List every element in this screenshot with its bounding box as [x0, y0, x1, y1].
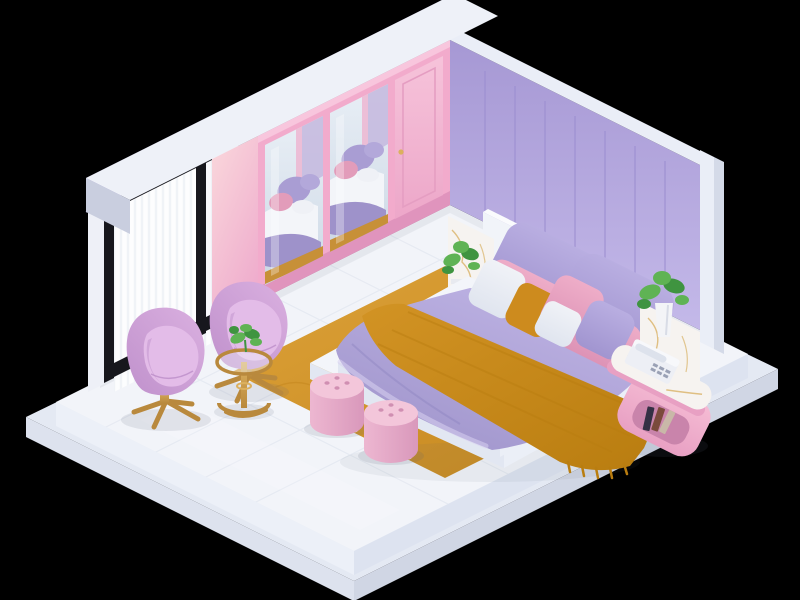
pouf-2 — [364, 400, 418, 463]
mirror-streak — [336, 114, 344, 244]
wall-end-column — [88, 202, 104, 392]
button — [378, 408, 383, 412]
plant-vase — [655, 303, 673, 337]
wardrobe-door-solid — [395, 56, 443, 219]
button — [334, 376, 339, 380]
button — [388, 403, 393, 407]
leaf — [637, 299, 651, 309]
window-frame-center-post — [196, 155, 206, 338]
reflected-pillow-lavender — [364, 142, 384, 158]
isometric-bedroom-scene — [0, 0, 800, 600]
pouf-1 — [310, 373, 364, 436]
leaf — [675, 295, 689, 305]
door-knob — [398, 149, 403, 154]
reflected-pillow-white — [292, 200, 314, 214]
button — [398, 408, 403, 412]
chair-leg — [166, 401, 192, 404]
leaf — [250, 338, 262, 346]
reflected-pillow-white — [357, 168, 379, 182]
right-wall-edge-trim — [700, 150, 714, 349]
leaf — [240, 324, 252, 332]
leaf — [468, 262, 480, 270]
bedroom-render — [0, 0, 800, 600]
right-wall-edge-trim-side — [714, 157, 724, 354]
vase-body — [655, 303, 673, 337]
button — [344, 381, 349, 385]
reflected-pillow-lavender — [300, 174, 320, 190]
leaf — [229, 326, 239, 334]
plant-stem — [245, 340, 246, 352]
button — [324, 381, 329, 385]
button — [334, 386, 339, 390]
mirror-streak — [271, 146, 279, 276]
button — [388, 413, 393, 417]
leaf — [453, 241, 469, 253]
chair-leg — [249, 375, 275, 378]
leaf — [442, 266, 454, 274]
leaf — [653, 271, 671, 285]
